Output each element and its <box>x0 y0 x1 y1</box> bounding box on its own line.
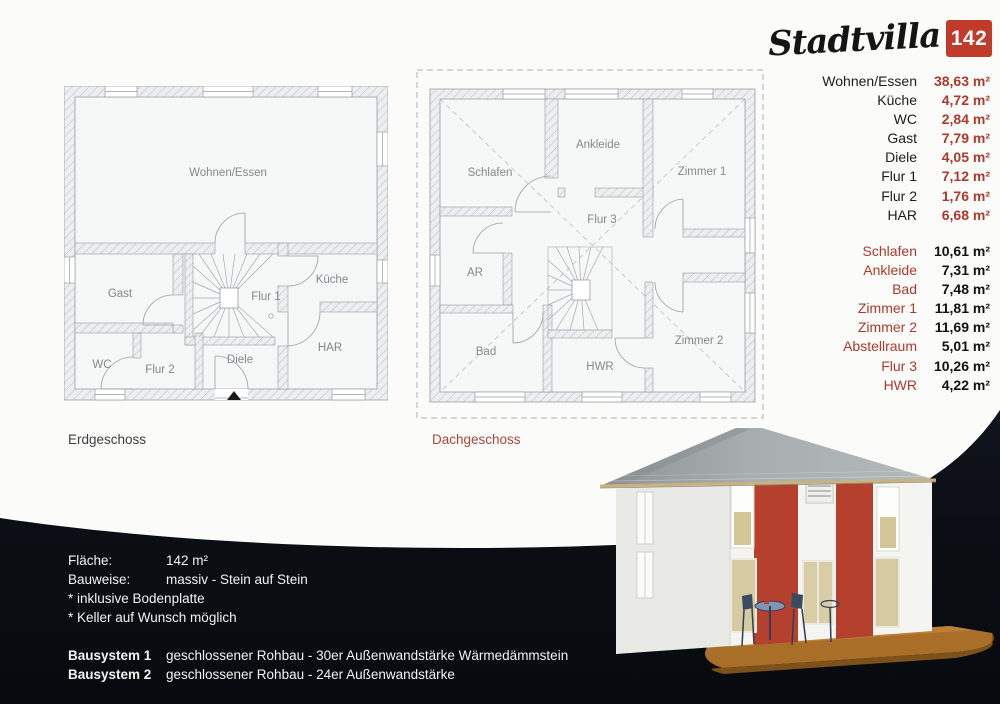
room-name: Flur 3 <box>798 357 917 376</box>
room-label: Flur 2 <box>145 364 174 376</box>
room-area: 7,79 m² <box>917 129 990 148</box>
table-row: HWR4,22 m² <box>798 376 990 395</box>
room-area: 7,12 m² <box>917 167 990 186</box>
room-area: 11,81 m² <box>917 299 990 318</box>
room-name: Zimmer 1 <box>798 299 917 318</box>
room-label: Diele <box>227 354 253 366</box>
room-label: Flur 1 <box>251 291 280 303</box>
room-area: 4,05 m² <box>917 148 990 167</box>
room-label: Küche <box>316 274 349 286</box>
room-name: Schlafen <box>798 242 917 261</box>
spec-label: Fläche: <box>68 551 166 570</box>
facade-stripe-left <box>754 475 798 645</box>
spec-value: 142 m² <box>166 551 208 570</box>
build-system-row: Bausystem 1 geschlossener Rohbau - 30er … <box>68 646 628 665</box>
spec-row: Bauweise: massiv - Stein auf Stein <box>68 570 628 589</box>
table-row: Küche4,72 m² <box>798 91 990 110</box>
upper-floor-plan: Schlafen Ankleide Zimmer 1 Flur 3 AR Bad… <box>415 68 765 420</box>
header: Stadtvilla 142 <box>768 20 992 60</box>
room-label: HAR <box>318 342 342 354</box>
room-label: Zimmer 2 <box>675 335 724 347</box>
room-name: Küche <box>798 91 917 110</box>
room-area: 2,84 m² <box>917 110 990 129</box>
model-badge: 142 <box>946 20 992 57</box>
room-label: Gast <box>108 288 133 300</box>
spec-note: * Keller auf Wunsch möglich <box>68 608 628 627</box>
table-row: Abstellraum5,01 m² <box>798 337 990 356</box>
build-systems: Bausystem 1 geschlossener Rohbau - 30er … <box>68 646 628 684</box>
room-label: AR <box>467 267 483 279</box>
room-label: Zimmer 1 <box>678 166 727 178</box>
room-area: 5,01 m² <box>917 337 990 356</box>
ground-floor-caption: Erdgeschoss <box>68 432 146 447</box>
room-name: Bad <box>798 280 917 299</box>
room-name: Wohnen/Essen <box>798 72 917 91</box>
brand-logo: Stadtvilla <box>767 16 941 65</box>
area-table-upper-floor: Schlafen10,61 m² Ankleide7,31 m² Bad7,48… <box>798 242 990 395</box>
room-name: Ankleide <box>798 261 917 280</box>
system-value: geschlossener Rohbau - 24er Außenwandstä… <box>166 665 455 684</box>
table-row: WC2,84 m² <box>798 110 990 129</box>
room-name: Diele <box>798 148 917 167</box>
room-label: WC <box>92 359 111 371</box>
house-left-wall <box>616 474 730 654</box>
room-area: 4,72 m² <box>917 91 990 110</box>
room-label: Ankleide <box>576 139 620 151</box>
table-row: Flur 310,26 m² <box>798 357 990 376</box>
brochure-page: Stadtvilla 142 Wohnen/Essen38,63 m² Küch… <box>0 0 1000 704</box>
room-area: 10,26 m² <box>917 357 990 376</box>
room-name: Zimmer 2 <box>798 318 917 337</box>
spec-label: Bauweise: <box>68 570 166 589</box>
room-label: HWR <box>586 361 613 373</box>
room-name: Flur 2 <box>798 187 917 206</box>
room-name: Gast <box>798 129 917 148</box>
spec-note: * inklusive Bodenplatte <box>68 589 628 608</box>
room-area: 11,69 m² <box>917 318 990 337</box>
table-row: Flur 21,76 m² <box>798 187 990 206</box>
room-name: HWR <box>798 376 917 395</box>
build-system-row: Bausystem 2 geschlossener Rohbau - 24er … <box>68 665 628 684</box>
room-name: Abstellraum <box>798 337 917 356</box>
system-label: Bausystem 2 <box>68 665 166 684</box>
room-area: 6,68 m² <box>917 206 990 225</box>
table-row: Zimmer 111,81 m² <box>798 299 990 318</box>
room-area: 1,76 m² <box>917 187 990 206</box>
table-row: Schlafen10,61 m² <box>798 242 990 261</box>
room-name: WC <box>798 110 917 129</box>
area-table-ground-floor: Wohnen/Essen38,63 m² Küche4,72 m² WC2,84… <box>798 72 990 225</box>
table-row: Gast7,79 m² <box>798 129 990 148</box>
table-row: Diele4,05 m² <box>798 148 990 167</box>
table-row: Flur 17,12 m² <box>798 167 990 186</box>
room-area: 4,22 m² <box>917 376 990 395</box>
room-label: Schlafen <box>468 167 513 179</box>
table-row: Bad7,48 m² <box>798 280 990 299</box>
room-label: Wohnen/Essen <box>189 167 267 179</box>
room-area: 10,61 m² <box>917 242 990 261</box>
specifications: Fläche: 142 m² Bauweise: massiv - Stein … <box>68 551 628 684</box>
table-row: Ankleide7,31 m² <box>798 261 990 280</box>
table-row: Zimmer 211,69 m² <box>798 318 990 337</box>
room-name: HAR <box>798 206 917 225</box>
room-area: 7,48 m² <box>917 280 990 299</box>
upper-floor-caption: Dachgeschoss <box>432 432 521 447</box>
spec-row: Fläche: 142 m² <box>68 551 628 570</box>
room-area: 38,63 m² <box>917 72 990 91</box>
facade-stripe-right <box>836 477 873 639</box>
system-value: geschlossener Rohbau - 30er Außenwandstä… <box>166 646 568 665</box>
room-label: Flur 3 <box>587 214 616 226</box>
ground-floor-plan: Wohnen/Essen Gast Küche Flur 1 WC Flur 2… <box>64 86 388 402</box>
house-roof <box>600 428 936 486</box>
table-row: HAR6,68 m² <box>798 206 990 225</box>
table-row: Wohnen/Essen38,63 m² <box>798 72 990 91</box>
system-label: Bausystem 1 <box>68 646 166 665</box>
room-name: Flur 1 <box>798 167 917 186</box>
room-label: Bad <box>476 346 496 358</box>
room-area: 7,31 m² <box>917 261 990 280</box>
spec-value: massiv - Stein auf Stein <box>166 570 308 589</box>
